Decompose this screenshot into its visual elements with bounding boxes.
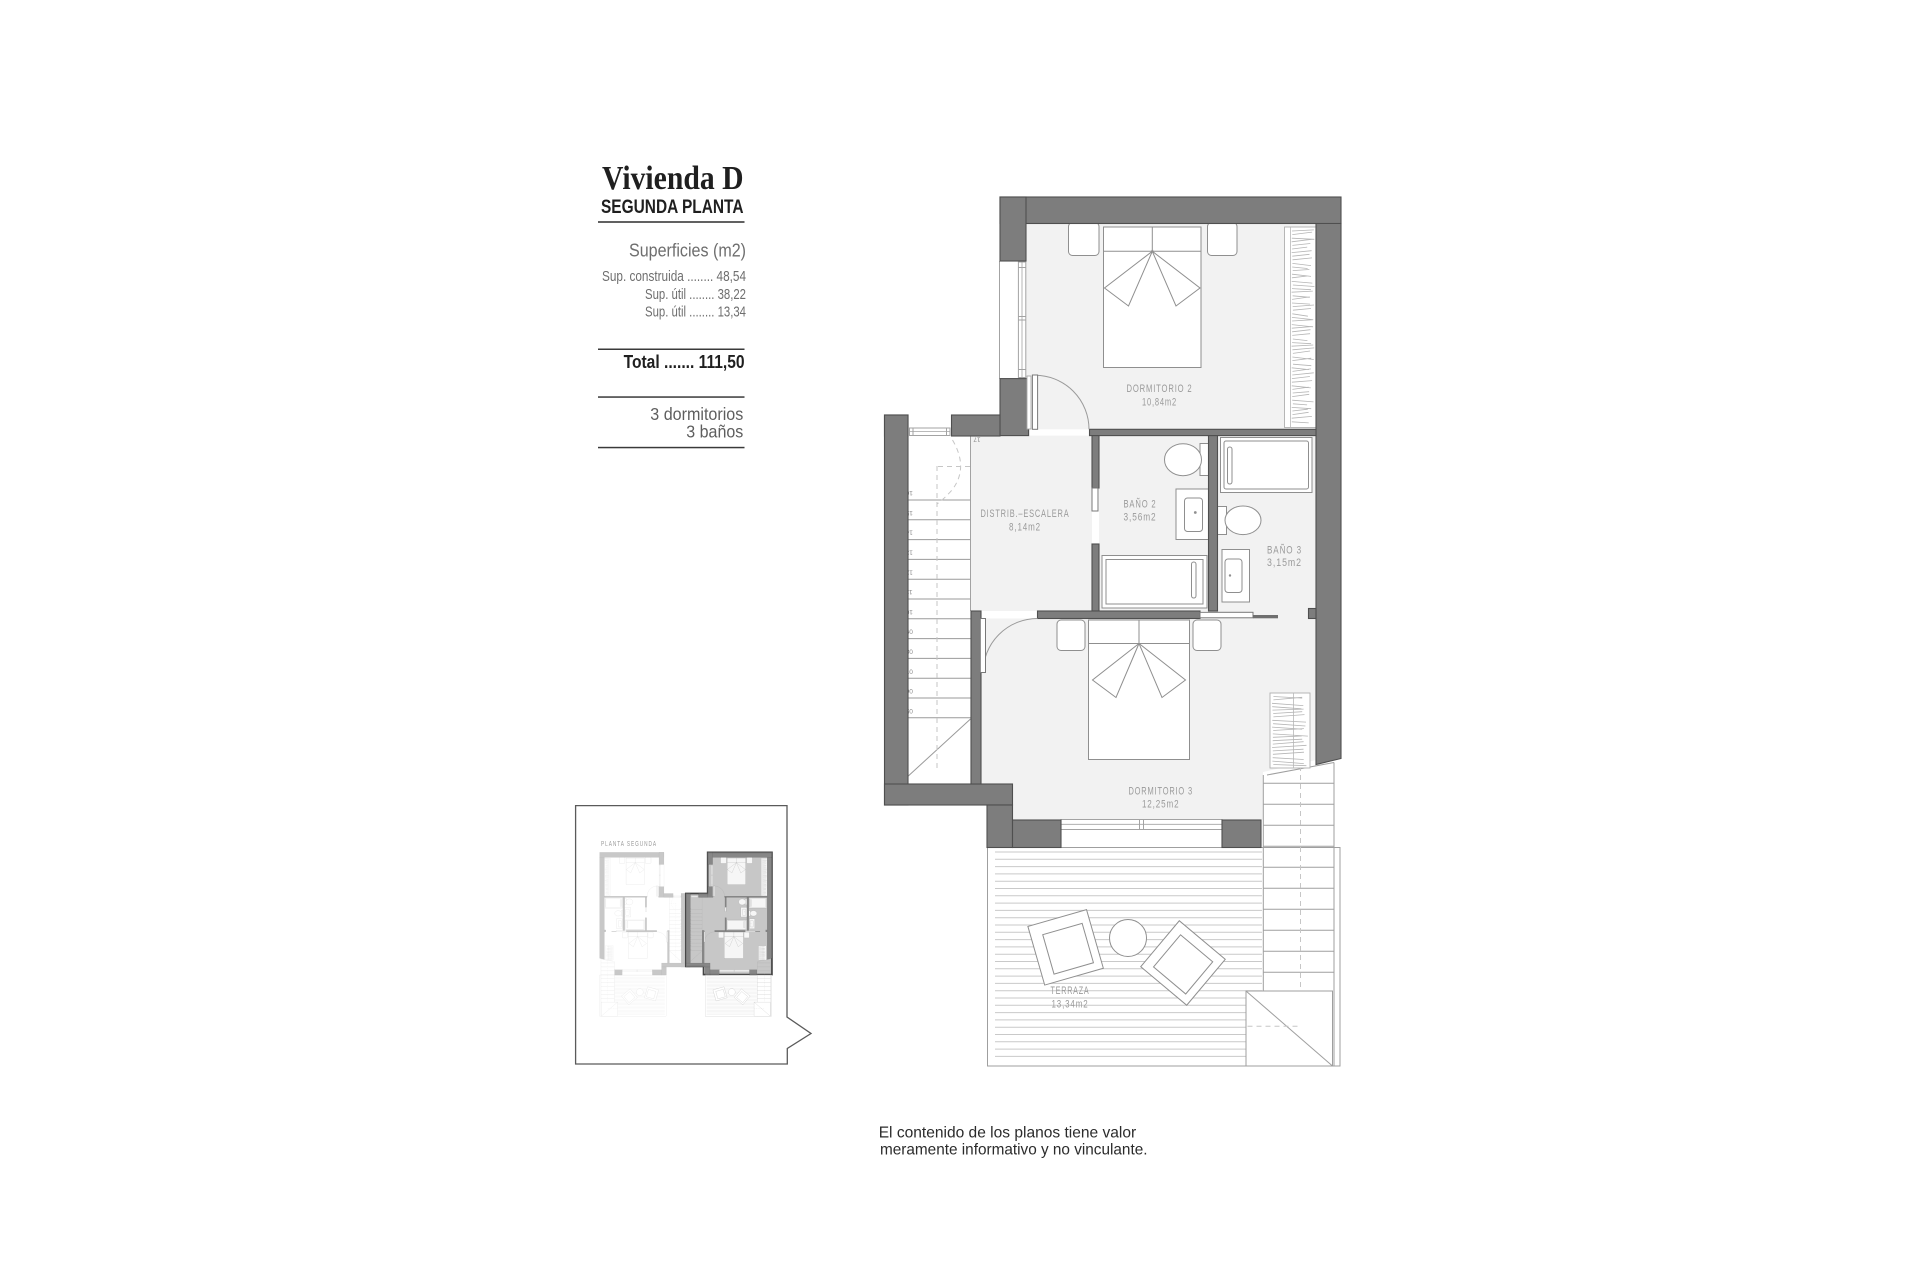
svg-text:Sup. útil ........ 13,34: Sup. útil ........ 13,34 [645, 304, 746, 321]
svg-text:SEGUNDA PLANTA: SEGUNDA PLANTA [601, 197, 744, 218]
svg-text:El contenido de los planos tie: El contenido de los planos tiene valor [879, 1125, 1137, 1142]
svg-text:12,25m2: 12,25m2 [1142, 799, 1180, 811]
svg-text:DORMITORIO 2: DORMITORIO 2 [1127, 383, 1193, 395]
svg-text:Total ....... 111,50: Total ....... 111,50 [624, 352, 745, 372]
svg-text:3,56m2: 3,56m2 [1124, 512, 1157, 524]
svg-text:3,15m2: 3,15m2 [1267, 557, 1302, 569]
svg-text:DISTRIB.–ESCALERA: DISTRIB.–ESCALERA [981, 508, 1070, 520]
svg-text:Sup. construida ........ 48,54: Sup. construida ........ 48,54 [602, 268, 746, 285]
svg-text:meramente informativo y no vin: meramente informativo y no vinculante. [880, 1142, 1148, 1159]
svg-text:BAÑO 2: BAÑO 2 [1124, 498, 1157, 511]
svg-text:TERRAZA: TERRAZA [1051, 985, 1090, 997]
svg-text:13,34m2: 13,34m2 [1052, 999, 1089, 1011]
svg-text:17: 17 [973, 436, 981, 443]
svg-text:BAÑO 3: BAÑO 3 [1267, 544, 1302, 557]
svg-text:Superficies (m2): Superficies (m2) [629, 241, 746, 261]
svg-text:DORMITORIO 3: DORMITORIO 3 [1128, 786, 1193, 798]
svg-text:3 baños: 3 baños [686, 422, 743, 442]
svg-text:Vivienda D: Vivienda D [602, 160, 744, 197]
svg-text:8,14m2: 8,14m2 [1009, 522, 1041, 534]
svg-text:10,84m2: 10,84m2 [1142, 397, 1177, 409]
svg-text:Sup. útil ........ 38,22: Sup. útil ........ 38,22 [645, 286, 746, 303]
svg-text:PLANTA SEGUNDA: PLANTA SEGUNDA [601, 839, 657, 848]
